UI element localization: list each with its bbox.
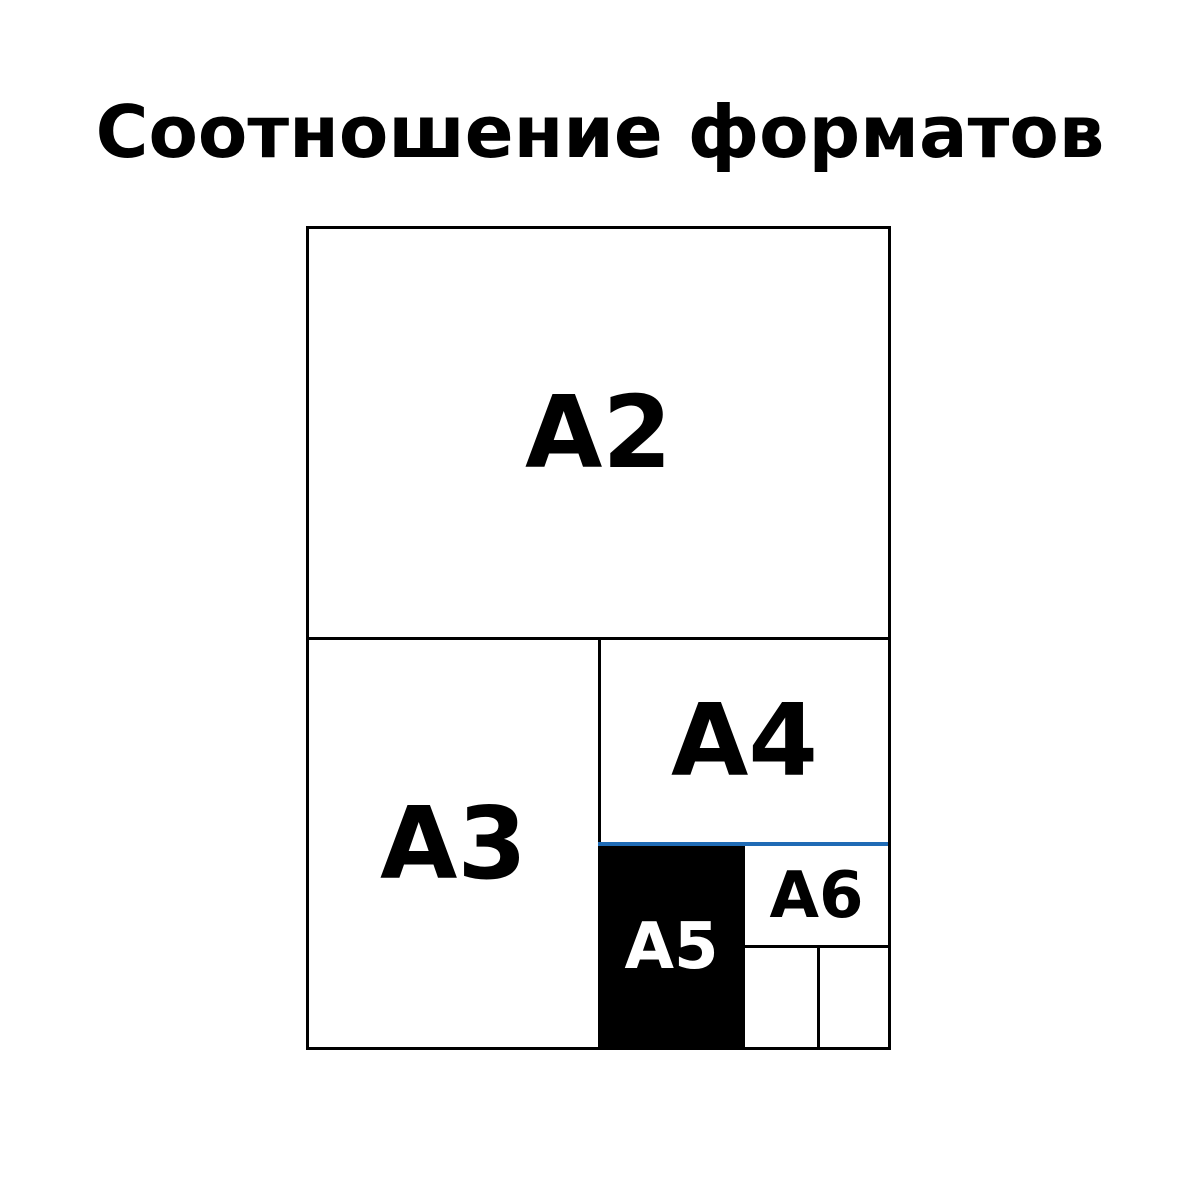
rect-a3: A3 xyxy=(309,640,598,1047)
page-title: Соотношение форматов xyxy=(96,90,1105,174)
a4-label: A4 xyxy=(671,691,818,791)
rect-small-cell-right xyxy=(820,948,888,1047)
a3-label: A3 xyxy=(380,794,527,894)
a6-label: A6 xyxy=(769,864,863,928)
divider-small-cells-vertical-line xyxy=(817,945,820,1047)
rect-small-cell-left xyxy=(745,948,817,1047)
paper-format-diagram: A2 A3 A4 A5 A6 xyxy=(306,226,891,1050)
rect-a6: A6 xyxy=(745,846,888,945)
rect-a4: A4 xyxy=(601,640,888,842)
page-title-container: Соотношение форматов xyxy=(0,86,1200,178)
rect-a5-filled: A5 xyxy=(598,846,745,1047)
a4-bottom-highlight-blue-line xyxy=(598,842,888,846)
a2-label: A2 xyxy=(525,383,672,483)
rect-a2: A2 xyxy=(309,229,888,637)
page: Соотношение форматов A2 A3 A4 A5 A6 xyxy=(0,0,1200,1200)
a5-label: A5 xyxy=(624,915,718,979)
